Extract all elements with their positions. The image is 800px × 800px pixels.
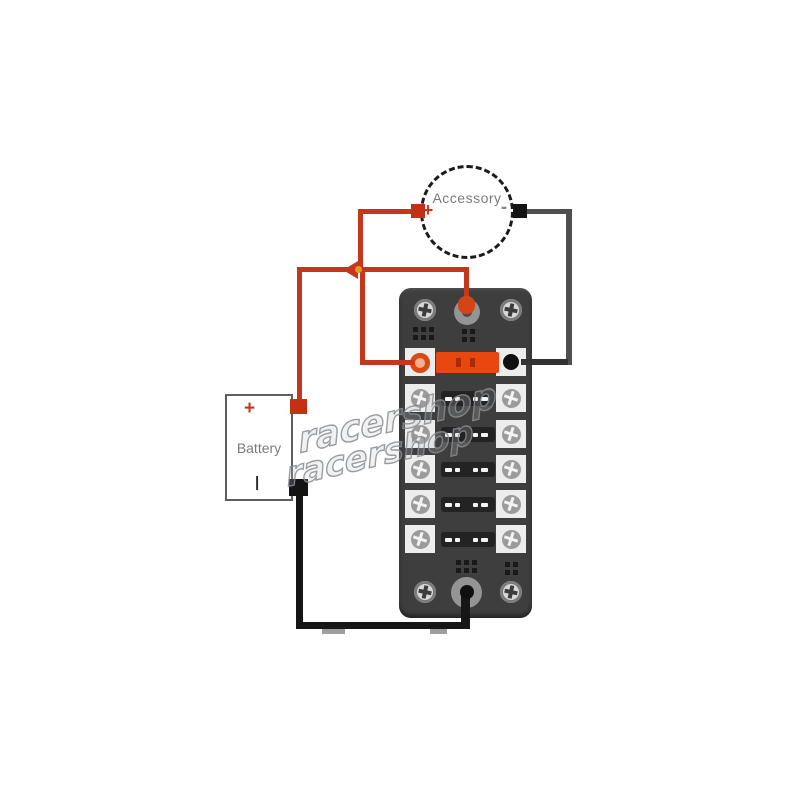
corner-screw-icon — [500, 299, 522, 321]
shadow-mark — [322, 629, 345, 634]
terminal-screw-icon — [502, 389, 521, 408]
vent-hole — [413, 335, 418, 340]
corner-screw-icon — [414, 299, 436, 321]
positive-wire-battery-vertical — [297, 267, 302, 403]
vent-hole — [462, 337, 467, 342]
fuse-contact-mark — [481, 468, 488, 472]
accessory-negative-terminal — [513, 204, 527, 218]
vent-hole — [429, 327, 434, 332]
negative-wire-accessory-vertical — [566, 209, 572, 365]
right-screw-terminal — [496, 420, 526, 448]
left-screw-terminal — [405, 525, 435, 553]
terminal-screw-icon — [411, 530, 430, 549]
vent-hole — [513, 570, 518, 575]
fuse-contact-mark — [473, 538, 478, 542]
wire-socket — [503, 354, 519, 370]
positive-wire-fuse-horizontal — [360, 360, 414, 365]
fuse-contact-mark — [445, 538, 452, 542]
fuse-row-5 — [399, 489, 532, 519]
vent-hole — [472, 560, 477, 565]
vent-hole — [464, 560, 469, 565]
negative-bus-connector — [460, 585, 474, 599]
right-screw-terminal — [496, 455, 526, 483]
terminal-screw-icon — [502, 530, 521, 549]
negative-wire-into-socket — [521, 359, 568, 365]
fuse-contact-mark — [445, 468, 452, 472]
fuse-contact-mark — [481, 433, 488, 437]
corner-screw-icon — [500, 581, 522, 603]
fuse-slot — [441, 462, 495, 477]
fuse-contact-mark — [455, 468, 460, 472]
accessory-positive-terminal — [411, 204, 425, 218]
fuse-contact-mark — [481, 538, 488, 542]
accessory-negative-symbol: - — [496, 197, 512, 219]
fuse-row-1 — [399, 347, 532, 377]
vent-hole — [470, 337, 475, 342]
positive-wire-accessory-vertical — [358, 209, 363, 272]
positive-bus-connector — [458, 296, 475, 314]
vent-hole — [413, 327, 418, 332]
wire-junction-dot — [355, 266, 362, 273]
vent-hole — [470, 329, 475, 334]
negative-wire-bottom-horizontal — [296, 622, 470, 629]
positive-wire-fuse-vertical — [360, 267, 365, 365]
vent-hole — [456, 560, 461, 565]
right-screw-terminal — [496, 384, 526, 412]
vent-hole — [472, 568, 477, 573]
fuse-contact-mark — [445, 503, 452, 507]
vent-hole — [421, 335, 426, 340]
fuse-contact-mark — [481, 503, 488, 507]
wiring-diagram: Accessory + - + Battery | — [0, 0, 800, 800]
negative-wire-battery-vertical — [296, 494, 303, 629]
terminal-screw-icon — [502, 425, 521, 444]
fuse-contact-mark — [455, 503, 460, 507]
left-screw-terminal — [405, 490, 435, 518]
terminal-screw-icon — [411, 495, 430, 514]
shadow-mark — [430, 629, 447, 634]
fuse-slot — [441, 497, 495, 512]
right-screw-terminal — [496, 525, 526, 553]
vent-hole — [505, 570, 510, 575]
fuse-slot — [441, 532, 495, 547]
fuse-contact-mark — [473, 468, 478, 472]
vent-hole — [456, 568, 461, 573]
negative-wire-accessory-horizontal — [527, 209, 571, 214]
vent-hole — [505, 562, 510, 567]
battery-positive-terminal — [290, 399, 307, 414]
fuse-contact-mark — [455, 538, 460, 542]
battery-negative-symbol: | — [255, 474, 259, 491]
vent-hole — [513, 562, 518, 567]
fuse-contact-mark — [473, 503, 478, 507]
battery-label: Battery — [225, 440, 293, 456]
vent-hole — [464, 568, 469, 573]
terminal-screw-icon — [502, 495, 521, 514]
fuse-row-6 — [399, 524, 532, 554]
vent-hole — [429, 335, 434, 340]
vent-hole — [421, 327, 426, 332]
corner-screw-icon — [414, 581, 436, 603]
installed-fuse — [436, 352, 499, 373]
vent-hole — [462, 329, 467, 334]
positive-wire-accessory-horizontal — [358, 209, 413, 214]
positive-wire-main-horizontal — [297, 267, 469, 272]
terminal-screw-icon — [502, 460, 521, 479]
battery-positive-symbol: + — [244, 398, 255, 420]
right-screw-terminal — [496, 490, 526, 518]
